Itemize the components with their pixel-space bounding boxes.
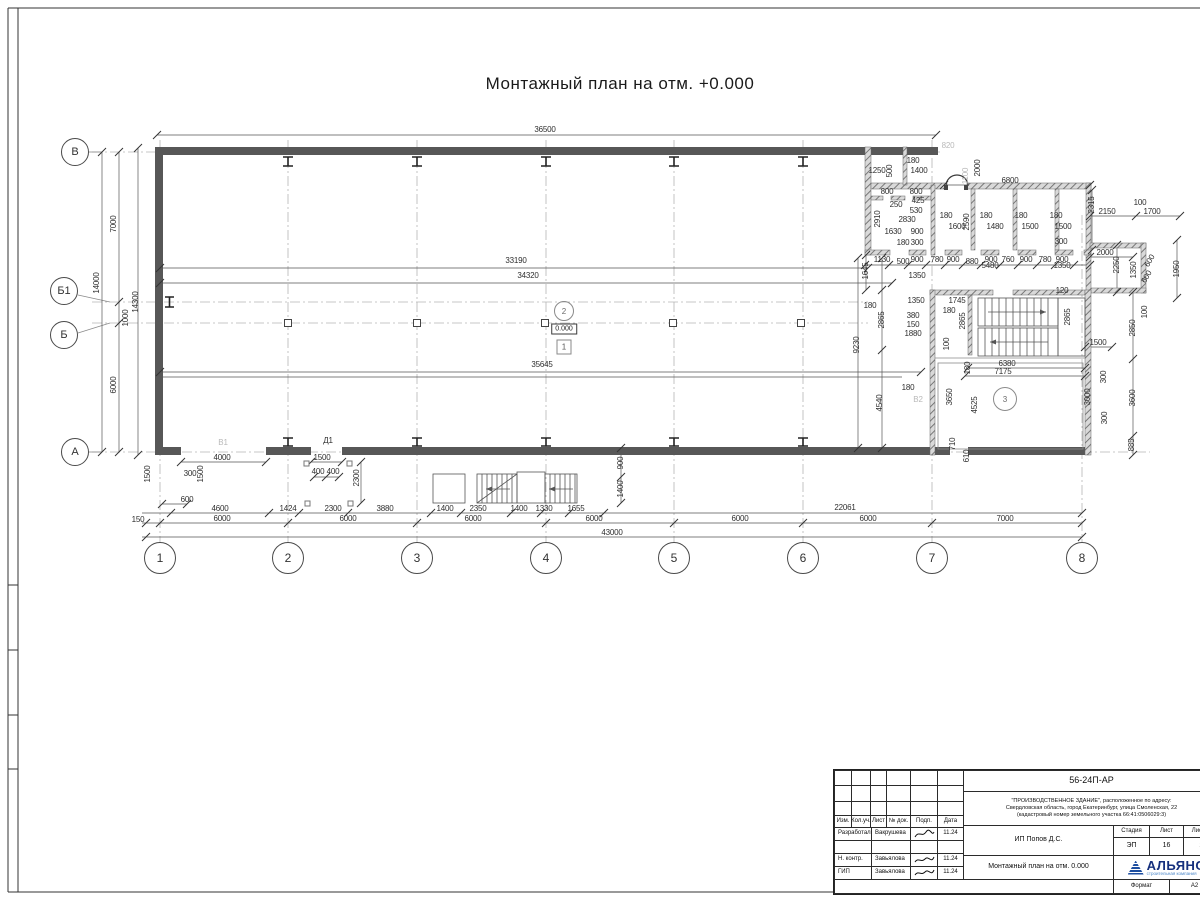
dim-label: 1400 — [911, 167, 928, 175]
signature — [910, 866, 938, 880]
axis-bubble-3: 3 — [401, 542, 433, 574]
dim-label: 22061 — [834, 504, 855, 512]
column-squares — [285, 320, 805, 507]
zone-marker-1: 1 — [557, 340, 572, 355]
project-line-1: "ПРОИЗВОДСТВЕННОЕ ЗДАНИЕ", расположенное… — [1011, 798, 1171, 805]
row-date: 11.24 — [937, 866, 964, 880]
dim-label: 6000 — [465, 515, 482, 523]
dim-label: 1500 — [1022, 223, 1039, 231]
axis-bubble-1: 1 — [144, 542, 176, 574]
dim-label: 43000 — [601, 529, 622, 537]
dim-label: 3000 — [1084, 389, 1092, 406]
dim-label: 1645 — [862, 263, 870, 280]
dim-label: 1500 — [314, 454, 331, 462]
dim-label: 400 — [327, 468, 340, 476]
axis-bubble-А: А — [61, 438, 89, 466]
stair-arrow-up — [1040, 310, 1046, 315]
dim-label: 150 — [907, 321, 920, 329]
dim-label: 2850 — [1129, 320, 1137, 337]
dim-label: 610 — [963, 450, 971, 463]
format-value: А2 — [1169, 879, 1200, 894]
dim-label: 180 — [907, 157, 920, 165]
sheet-title: Монтажный план на отм. 0.000 — [963, 855, 1114, 880]
stamp-empty-col — [834, 770, 852, 816]
dim-label: 1000 — [122, 310, 130, 327]
stair-arrow-down — [990, 340, 996, 345]
dim-label: 100 — [1141, 306, 1149, 319]
dim-label: 1350 — [1130, 262, 1138, 279]
dim-label: 380 — [907, 312, 920, 320]
dim-label: 530 — [910, 207, 923, 215]
axis-bubble-7: 7 — [916, 542, 948, 574]
dim-label: 3650 — [946, 389, 954, 406]
dim-label: 500 — [886, 165, 894, 178]
dim-label: 120 — [1056, 287, 1069, 295]
dim-label: 4600 — [212, 505, 229, 513]
axis-bubble-Б: Б — [50, 321, 78, 349]
axis-bubble-Б1: Б1 — [50, 277, 78, 305]
dim-label: 180 — [864, 302, 877, 310]
drawing-sheet: Монтажный план на отм. +0.000 3650068002… — [0, 0, 1200, 900]
dim-label: 900 — [947, 256, 960, 264]
dim-label: 2910 — [874, 211, 882, 228]
dim-label: 1130 — [874, 256, 890, 264]
dim-label: 36500 — [534, 126, 555, 134]
zone-marker-2: 2 — [554, 301, 574, 321]
axis-bubble-2: 2 — [272, 542, 304, 574]
column-beams — [165, 157, 808, 446]
dim-label: 1400 — [617, 481, 625, 498]
stamp-empty-col — [910, 770, 938, 816]
dim-label: 35645 — [531, 361, 552, 369]
dim-label: 150 — [132, 516, 145, 524]
staircase-bottom — [433, 472, 577, 503]
axis-bubble-5: 5 — [658, 542, 690, 574]
dim-label: 100 — [1134, 199, 1147, 207]
dim-label: 800 — [910, 188, 923, 196]
project-description: "ПРОИЗВОДСТВЕННОЕ ЗДАНИЕ", расположенное… — [963, 791, 1200, 826]
dim-label: 1500 — [1090, 339, 1107, 347]
company-logo: АЛЬЯНС строительная компания — [1113, 855, 1200, 880]
dim-label: 2865 — [959, 313, 967, 330]
axis-bubble-В: В — [61, 138, 89, 166]
row-role — [834, 840, 872, 854]
dim-label: 820 — [942, 142, 955, 150]
axis-bubble-8: 8 — [1066, 542, 1098, 574]
dim-label: 300 — [911, 239, 924, 247]
dim-label: 100 — [943, 338, 951, 351]
floor-plan-drawing — [0, 0, 1200, 900]
dim-label: 2590 — [963, 214, 971, 231]
dim-label: 780 — [931, 256, 944, 264]
dim-label: 1350 — [908, 297, 925, 305]
dim-label: 180 — [902, 384, 915, 392]
dim-label: 300 — [184, 470, 197, 478]
dim-label: 2000 — [974, 160, 982, 177]
dim-label: 1655 — [568, 505, 585, 513]
signature — [910, 827, 938, 841]
row-name — [871, 840, 911, 854]
dim-label: 880 — [966, 258, 979, 266]
zone-marker-2-label: 2 — [562, 307, 566, 316]
dim-label: 900 — [1020, 256, 1033, 264]
row-role: Н. контр. — [834, 853, 872, 867]
dim-label: 180 — [964, 362, 972, 375]
dim-label: 2865 — [878, 312, 886, 329]
dim-label: 3600 — [1129, 390, 1137, 407]
dim-label: 1424 — [280, 505, 297, 513]
dim-label: В1 — [218, 439, 227, 447]
dim-label: В2 — [913, 396, 922, 404]
dim-label: 2000 — [1097, 249, 1114, 257]
dim-label: 1880 — [905, 330, 922, 338]
stamp-line — [834, 801, 963, 802]
dim-label: 6000 — [340, 515, 357, 523]
dim-label: 885 — [1128, 439, 1136, 452]
dim-label: 7000 — [110, 216, 118, 233]
client-name: ИП Попов Д.С. — [963, 825, 1114, 856]
dim-label: 7175 — [995, 368, 1012, 376]
dim-label: 2300 — [353, 470, 361, 487]
dim-label: 2865 — [1064, 309, 1072, 326]
dim-label: 1400 — [511, 505, 528, 513]
doc-number: 56-24П-АР — [963, 770, 1200, 792]
dim-label: 1350 — [909, 272, 926, 280]
dim-label: 2315 — [1088, 197, 1096, 214]
dim-label: 900 — [911, 256, 924, 264]
signature — [910, 853, 938, 867]
dim-label: 6000 — [110, 377, 118, 394]
dim-label: 1330 — [536, 505, 553, 513]
dim-label: 300 — [1101, 412, 1109, 425]
row-date — [937, 840, 964, 854]
row-sign-empty — [910, 840, 938, 854]
dim-label: 1400 — [437, 505, 454, 513]
dim-label: 6000 — [214, 515, 231, 523]
room-marker-3: 3 — [993, 387, 1017, 411]
staircase-main — [978, 298, 1085, 356]
dim-label: 1745 — [949, 297, 966, 305]
axis-bubble-6: 6 — [787, 542, 819, 574]
dim-label: 425 — [912, 197, 925, 205]
dim-label: 180 — [1015, 212, 1028, 220]
dim-label: 1500 — [197, 466, 205, 483]
dim-label: 500 — [897, 258, 910, 266]
dim-label: 180 — [897, 239, 910, 247]
format-label: Формат — [1113, 879, 1170, 894]
stamp-empty-col — [870, 770, 887, 816]
dim-label: 1630 — [885, 228, 902, 236]
stamp-empty-col — [851, 770, 871, 816]
dim-label: 180 — [943, 307, 956, 315]
dim-label: 7000 — [997, 515, 1014, 523]
dim-label: 2250 — [1113, 257, 1121, 274]
dim-label: 180 — [980, 212, 993, 220]
dim-label: 34320 — [517, 272, 538, 280]
dimension-lines — [102, 135, 1180, 537]
dimension-ticks — [98, 131, 1184, 541]
dim-label: 1250 — [869, 167, 886, 175]
dim-label: 300 — [1055, 238, 1068, 246]
sheet-value: 16 — [1149, 837, 1184, 856]
dim-label: 6000 — [732, 515, 749, 523]
stamp-line — [834, 785, 963, 786]
dim-label: 14300 — [132, 291, 140, 312]
project-line-2: Свердловская область, город Екатеринбург… — [1006, 805, 1177, 812]
row-name: Завьялова — [871, 866, 911, 880]
dim-label: 6000 — [860, 515, 877, 523]
row-date: 11.24 — [937, 853, 964, 867]
row-role: Разработал — [834, 827, 872, 841]
dim-label: 2300 — [325, 505, 342, 513]
row-name: Вакрушева — [871, 827, 911, 841]
dim-label: 4540 — [876, 395, 884, 412]
dim-label: 250 — [890, 201, 903, 209]
dim-label: 1500 — [1055, 223, 1072, 231]
room-marker-3-label: 3 — [1003, 395, 1007, 404]
logo-name: АЛЬЯНС — [1147, 859, 1200, 872]
dim-label: 180 — [1050, 212, 1063, 220]
dim-label: 14000 — [93, 272, 101, 293]
dim-label: 2150 — [1099, 208, 1116, 216]
dim-label: 400 — [312, 468, 325, 476]
format-strip-empty — [834, 879, 1114, 894]
row-date: 11.24 — [937, 827, 964, 841]
dim-label: 1950 — [1173, 261, 1181, 278]
dim-label: 1700 — [1144, 208, 1161, 216]
stage-value: ЭП — [1113, 837, 1150, 856]
dim-label: Д1 — [323, 437, 332, 445]
dim-label: 1350 — [1054, 262, 1071, 270]
level-marker: 0.000 — [551, 324, 577, 335]
sheets-value: 2 — [1183, 837, 1200, 856]
project-line-3: (кадастровый номер земельного участка 66… — [1017, 812, 1166, 819]
logo-subtitle: строительная компания — [1147, 872, 1197, 877]
row-name: Завьялова — [871, 853, 911, 867]
stamp-empty-col — [937, 770, 964, 816]
dim-label: 2350 — [470, 505, 487, 513]
dim-label: 4525 — [971, 397, 979, 414]
dim-label: 2830 — [899, 216, 916, 224]
dim-label: 600 — [181, 496, 194, 504]
logo-triangle-icon — [1128, 861, 1144, 875]
dim-label: 9230 — [853, 337, 861, 354]
dim-label: 780 — [1039, 256, 1052, 264]
dim-label: 1100 — [962, 168, 970, 184]
dim-label: 900 — [617, 457, 625, 470]
page-title: Монтажный план на отм. +0.000 — [486, 74, 755, 94]
dim-label: 900 — [911, 228, 924, 236]
axis-bubble-4: 4 — [530, 542, 562, 574]
dim-label: 180 — [940, 212, 953, 220]
stamp-empty-col — [886, 770, 911, 816]
dim-label: 5480 — [982, 262, 999, 270]
dim-label: 4000 — [214, 454, 231, 462]
title-block: Изм. Кол.уч. Лист № док. Подп. Дата Разр… — [833, 769, 1200, 895]
dim-label: 760 — [1002, 256, 1015, 264]
dim-label: 1480 — [987, 223, 1004, 231]
dim-label: 6800 — [1002, 177, 1019, 185]
dim-label: 800 — [881, 188, 894, 196]
dim-label: 3880 — [377, 505, 394, 513]
dim-label: 1500 — [144, 466, 152, 483]
row-role: ГИП — [834, 866, 872, 880]
dim-label: 6000 — [586, 515, 603, 523]
dim-label: 710 — [949, 438, 957, 451]
dim-label: 33190 — [505, 257, 526, 265]
dim-label: 300 — [1100, 371, 1108, 384]
